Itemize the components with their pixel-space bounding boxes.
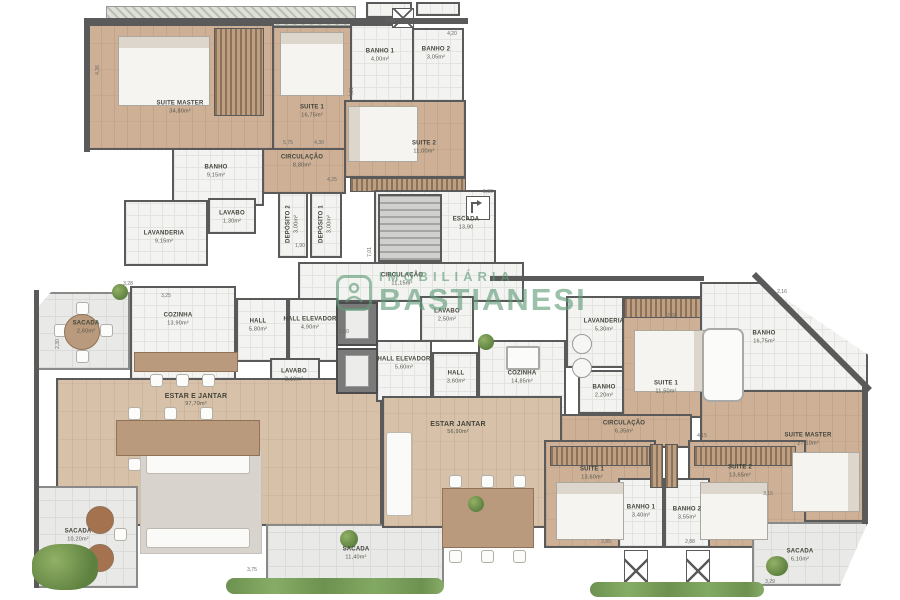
room-area: 3,60m² bbox=[447, 378, 465, 385]
chair-icon bbox=[481, 550, 494, 563]
room-name: SUITE 2 bbox=[728, 465, 752, 471]
room-area: 5,60m² bbox=[377, 364, 430, 371]
dimension: 3,15 bbox=[763, 491, 773, 497]
dining-table-icon bbox=[442, 488, 534, 548]
label-deposito2: DEPÓSITO 23,00m² bbox=[286, 205, 301, 243]
plant-icon bbox=[478, 334, 494, 350]
label-banho1-upper: BANHO 14,00m² bbox=[366, 49, 394, 64]
chair-icon bbox=[100, 324, 113, 337]
dimension: 4,21 bbox=[349, 87, 355, 97]
dimension: 4,20 bbox=[447, 31, 457, 37]
label-suite2-bottom: SUITE 213,65m² bbox=[728, 465, 752, 480]
room-area: 11,00m² bbox=[412, 148, 436, 155]
room-name: HALL bbox=[250, 319, 267, 325]
dimension: 2,88 bbox=[685, 539, 695, 545]
room-area: 14,85m² bbox=[508, 378, 537, 385]
label-banho-upper: BANHO9,15m² bbox=[205, 165, 228, 180]
label-suite1-lower: SUITE 111,50m² bbox=[654, 381, 678, 396]
dimension: 2,68 bbox=[667, 313, 677, 319]
room-area: 13,60m² bbox=[580, 474, 604, 481]
label-sacada-se: SACADA6,10m² bbox=[787, 549, 814, 564]
room-area: 11,50m² bbox=[654, 388, 678, 395]
wall bbox=[862, 382, 868, 524]
dimension: 1,50 bbox=[339, 329, 349, 335]
sofa-icon bbox=[146, 454, 250, 474]
room-area: 9,15m² bbox=[205, 172, 228, 179]
room-name: BANHO bbox=[593, 385, 616, 391]
stool-icon bbox=[176, 374, 189, 387]
room-area: 3,55m² bbox=[673, 514, 701, 521]
room-area: 10,20m² bbox=[65, 536, 92, 543]
room-name: SACADA bbox=[65, 529, 92, 535]
cooktop-island-icon bbox=[506, 346, 540, 370]
label-lavanderia-upper: LAVANDERIA9,15m² bbox=[144, 231, 184, 246]
dimension: 3,75 bbox=[247, 567, 257, 573]
hedge-plants bbox=[226, 578, 444, 594]
dimension: 3,28 bbox=[123, 281, 133, 287]
room-area: 6,35m² bbox=[603, 428, 645, 435]
room-name: LAVANDERIA bbox=[144, 231, 184, 237]
stool-icon bbox=[202, 374, 215, 387]
room-name: DEPÓSITO 1 bbox=[319, 205, 325, 243]
dimension: 4,36 bbox=[95, 65, 101, 75]
washer-icon bbox=[572, 334, 592, 354]
dimension: 4,15 bbox=[697, 433, 707, 439]
room-area: 13,90 bbox=[453, 224, 480, 231]
top-planter-box-2 bbox=[416, 2, 460, 16]
room-area: 13,65m² bbox=[728, 472, 752, 479]
wall bbox=[348, 18, 468, 24]
label-hall-lower: HALL3,60m² bbox=[447, 371, 465, 386]
room-area: 11,40m² bbox=[343, 554, 370, 561]
label-suite-master-lower: SUITE MASTER27,10m² bbox=[784, 433, 831, 448]
wardrobe-suite2-bottom bbox=[694, 446, 796, 466]
room-area: 4,00m² bbox=[366, 56, 394, 63]
bathtub-icon bbox=[702, 328, 744, 402]
bush-icon bbox=[32, 544, 98, 590]
dimension: 7,01 bbox=[367, 247, 373, 257]
room-area: 5,30m² bbox=[584, 326, 624, 333]
bastianesi-logo-icon bbox=[336, 275, 372, 311]
sofa-icon bbox=[386, 432, 412, 516]
room-name: LAVABO bbox=[219, 211, 245, 217]
label-suite2-upper: SUITE 211,00m² bbox=[412, 141, 436, 156]
room-name: BANHO 2 bbox=[422, 47, 450, 53]
room-area: 9,15m² bbox=[144, 238, 184, 245]
room-name: DEPÓSITO 2 bbox=[286, 205, 292, 243]
sofa-icon bbox=[146, 528, 250, 548]
label-lavanderia-lower: LAVANDERIA5,30m² bbox=[584, 319, 624, 334]
dimension: 2,30 bbox=[55, 339, 61, 349]
label-cozinha-lower: COZINHA14,85m² bbox=[508, 371, 537, 386]
chair-icon bbox=[449, 475, 462, 488]
label-hall-elevador-upper: HALL ELEVADOR4,90m² bbox=[283, 317, 336, 332]
room-name: SUITE 2 bbox=[412, 141, 436, 147]
room-name: SUITE MASTER bbox=[784, 433, 831, 439]
bed-icon bbox=[792, 452, 860, 512]
plant-icon bbox=[766, 556, 788, 576]
dimension: 2,80 bbox=[385, 18, 395, 24]
room-area: 16,75m² bbox=[300, 112, 324, 119]
room-name: BANHO 2 bbox=[673, 507, 701, 513]
dimension: 3,25 bbox=[161, 293, 171, 299]
room-banho2-upper bbox=[412, 28, 464, 102]
dimension: 2,85 bbox=[601, 539, 611, 545]
stairs-icon bbox=[378, 194, 442, 262]
room-name: SACADA bbox=[787, 549, 814, 555]
label-banho-lower: BANHO2,20m² bbox=[593, 385, 616, 400]
floor-plan: SUITE MASTER34,80m² SUITE 116,75m² BANHO… bbox=[0, 0, 900, 600]
label-hall-elevador-lower: HALL ELEVADOR5,60m² bbox=[377, 357, 430, 372]
label-lavabo-upper: LAVABO1,30m² bbox=[219, 211, 245, 226]
watermark-text: IMOBILIÁRIA BASTIANESI bbox=[379, 270, 587, 315]
room-area: 27,10m² bbox=[784, 440, 831, 447]
label-sacada-sw: SACADA10,20m² bbox=[65, 529, 92, 544]
chair-icon bbox=[200, 407, 213, 420]
room-name: SUITE MASTER bbox=[156, 101, 203, 107]
label-banho2-bottom: BANHO 23,55m² bbox=[673, 507, 701, 522]
room-area: 3,00m² bbox=[326, 205, 333, 243]
room-area: 2,60m² bbox=[73, 328, 100, 335]
room-name: BANHO bbox=[205, 165, 228, 171]
label-circulacao-upper: CIRCULAÇÃO8,80m² bbox=[281, 155, 323, 170]
label-lavabo2-upper: LAVABO2,10m² bbox=[281, 369, 307, 384]
wardrobe-suite-master bbox=[214, 28, 264, 116]
room-area: 34,80m² bbox=[156, 108, 203, 115]
label-banho2-upper: BANHO 23,05m² bbox=[422, 47, 450, 62]
washer-icon bbox=[572, 358, 592, 378]
label-banho1-bottom: BANHO 13,40m² bbox=[627, 505, 655, 520]
stool-icon bbox=[150, 374, 163, 387]
label-cozinha-upper: COZINHA13,90m² bbox=[164, 313, 193, 328]
label-suite1-upper: SUITE 116,75m² bbox=[300, 105, 324, 120]
room-name: CIRCULAÇÃO bbox=[281, 155, 323, 161]
bed-icon bbox=[556, 482, 624, 540]
dimension: 5,30 bbox=[483, 189, 493, 195]
plant-icon bbox=[340, 530, 358, 548]
room-area: 8,80m² bbox=[281, 162, 323, 169]
label-deposito1: DEPÓSITO 13,00m² bbox=[319, 205, 334, 243]
hedge-plants bbox=[590, 582, 764, 597]
shaft bbox=[650, 444, 663, 488]
watermark-line2: BASTIANESI bbox=[379, 284, 587, 315]
wall bbox=[34, 290, 39, 588]
chair-icon bbox=[128, 407, 141, 420]
wall bbox=[84, 18, 90, 152]
dimension: 4,30 bbox=[314, 140, 324, 146]
room-area: 2,50m² bbox=[434, 316, 460, 323]
watermark: IMOBILIÁRIA BASTIANESI bbox=[336, 270, 587, 315]
wall bbox=[84, 18, 368, 24]
room-name: SACADA bbox=[343, 547, 370, 553]
room-name: LAVANDERIA bbox=[584, 319, 624, 325]
dimension: 2,16 bbox=[777, 289, 787, 295]
room-name: CIRCULAÇÃO bbox=[603, 421, 645, 427]
dimension: 4,25 bbox=[327, 177, 337, 183]
room-name: ESTAR JANTAR bbox=[430, 421, 485, 428]
room-area: 6,10m² bbox=[787, 556, 814, 563]
wardrobe-suite1-bottom bbox=[550, 446, 650, 466]
room-name: ESCADA bbox=[453, 217, 480, 223]
plant-icon bbox=[468, 496, 484, 512]
room-area: 16,75m² bbox=[753, 338, 776, 345]
room-area: 4,90m² bbox=[283, 324, 336, 331]
kitchen-island-icon bbox=[134, 352, 238, 372]
room-name: SUITE 1 bbox=[300, 105, 324, 111]
room-name: BANHO 1 bbox=[366, 49, 394, 55]
room-name: HALL ELEVADOR bbox=[283, 317, 336, 323]
room-area: 97,70m² bbox=[165, 401, 227, 408]
room-area: 3,40m² bbox=[627, 512, 655, 519]
room-name: SUITE 1 bbox=[654, 381, 678, 387]
chair-icon bbox=[164, 407, 177, 420]
elevator-icon-2 bbox=[336, 348, 378, 394]
dimension: 5,75 bbox=[283, 140, 293, 146]
label-banho-master-lower: BANHO16,75m² bbox=[753, 331, 776, 346]
room-name: LAVABO bbox=[281, 369, 307, 375]
label-hall-upper: HALL5,80m² bbox=[249, 319, 267, 334]
bed-icon bbox=[700, 482, 768, 540]
label-suite-master-upper: SUITE MASTER34,80m² bbox=[156, 101, 203, 116]
room-name: HALL ELEVADOR bbox=[377, 357, 430, 363]
room-name: SUITE 1 bbox=[580, 467, 604, 473]
room-name: BANHO 1 bbox=[627, 505, 655, 511]
label-estar-lower: ESTAR JANTAR56,90m² bbox=[430, 420, 485, 436]
room-name: COZINHA bbox=[508, 371, 537, 377]
room-area: 13,90m² bbox=[164, 320, 193, 327]
bed-icon bbox=[118, 36, 210, 106]
room-name: ESTAR E JANTAR bbox=[165, 393, 227, 400]
dining-table-icon bbox=[116, 420, 260, 456]
chair-icon bbox=[481, 475, 494, 488]
label-sacada-upper: SACADA2,60m² bbox=[73, 321, 100, 336]
chair-icon bbox=[76, 350, 89, 363]
label-suite1-bottom: SUITE 113,60m² bbox=[580, 467, 604, 482]
chair-icon bbox=[449, 550, 462, 563]
room-area: 5,80m² bbox=[249, 326, 267, 333]
room-area: 2,20m² bbox=[593, 392, 616, 399]
chair-icon bbox=[513, 550, 526, 563]
room-area: 3,00m² bbox=[293, 205, 300, 243]
room-name: SACADA bbox=[73, 321, 100, 327]
dimension: 1,90 bbox=[295, 243, 305, 249]
room-area: 56,90m² bbox=[430, 429, 485, 436]
dimension: 3,29 bbox=[765, 579, 775, 585]
chair-icon bbox=[513, 475, 526, 488]
room-area: 3,05m² bbox=[422, 54, 450, 61]
room-name: HALL bbox=[448, 371, 465, 377]
label-escada: ESCADA13,90 bbox=[453, 217, 480, 232]
side-table-icon bbox=[114, 528, 127, 541]
room-area: 1,30m² bbox=[219, 218, 245, 225]
label-estar-upper: ESTAR E JANTAR97,70m² bbox=[165, 392, 227, 408]
room-area: 2,10m² bbox=[281, 376, 307, 383]
room-name: COZINHA bbox=[164, 313, 193, 319]
label-sacada-south: SACADA11,40m² bbox=[343, 547, 370, 562]
shaft-2 bbox=[665, 444, 678, 488]
bed-icon bbox=[348, 106, 418, 162]
label-circulacao-lower: CIRCULAÇÃO6,35m² bbox=[603, 421, 645, 436]
room-name: BANHO bbox=[753, 331, 776, 337]
bed-icon bbox=[280, 32, 344, 96]
